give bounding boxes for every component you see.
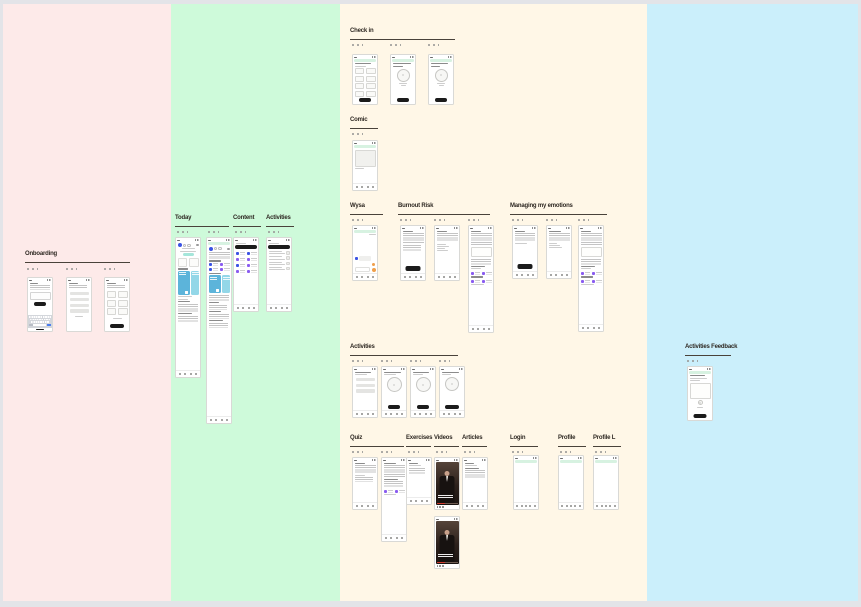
- activity-thumb-icon: [286, 267, 290, 271]
- question-line: [690, 378, 707, 379]
- skip-link[interactable]: [75, 316, 83, 317]
- profile-icon: [459, 413, 461, 415]
- avatar[interactable]: [209, 247, 213, 251]
- text-line: [515, 243, 527, 244]
- exercises-screen-1[interactable]: [406, 457, 432, 505]
- text-lines: [384, 481, 403, 487]
- text-lines: [437, 233, 458, 242]
- shortcut-row: [209, 268, 230, 271]
- app-bar: [595, 460, 617, 463]
- frame-dots: [512, 451, 523, 453]
- resource-item[interactable]: [592, 272, 602, 275]
- resource-row: [384, 490, 405, 493]
- mood-options[interactable]: [355, 68, 376, 74]
- frame-dots: [352, 133, 363, 135]
- quote-box: [581, 247, 602, 257]
- timer-dial[interactable]: [445, 377, 459, 391]
- home-icon: [438, 276, 440, 278]
- keyboard-space-key[interactable]: [33, 324, 46, 326]
- blue-app-icon: [236, 264, 239, 267]
- category-tabs[interactable]: [268, 245, 290, 249]
- bottom-nav[interactable]: [435, 273, 459, 280]
- option-row[interactable]: [70, 304, 89, 307]
- pause-button[interactable]: [417, 405, 429, 409]
- video-player[interactable]: [436, 462, 459, 506]
- content-screen-1[interactable]: [233, 237, 259, 312]
- bottom-nav[interactable]: [353, 273, 377, 280]
- activities-icon: [477, 505, 479, 507]
- activity-row[interactable]: [269, 267, 290, 270]
- timer-dial[interactable]: [387, 377, 402, 392]
- managing-emotions-screen-3[interactable]: [578, 225, 604, 332]
- activities-feedback-screen[interactable]: [687, 366, 713, 421]
- text-lines: [69, 285, 87, 289]
- app-bar: [689, 371, 711, 374]
- option-chips[interactable]: [107, 300, 128, 307]
- activity-row[interactable]: [269, 256, 290, 259]
- start-button[interactable]: [388, 405, 400, 409]
- profile-icon: [532, 274, 534, 276]
- summary-card[interactable]: [189, 258, 199, 267]
- profile-icon: [195, 373, 197, 375]
- home-icon: [237, 307, 239, 309]
- activity-row[interactable]: [269, 262, 290, 265]
- shortcut[interactable]: [220, 263, 230, 266]
- heading-line: [442, 372, 459, 373]
- section-underline: [406, 446, 431, 447]
- heading-line: [471, 276, 483, 277]
- done-button[interactable]: [435, 98, 447, 102]
- bell-icon[interactable]: [196, 244, 198, 246]
- avatar[interactable]: [178, 243, 182, 247]
- text-line: [355, 374, 367, 375]
- status-bar: [354, 368, 376, 371]
- feature-card-cyan[interactable]: [222, 275, 229, 293]
- profile-icon: [566, 274, 568, 276]
- bottom-nav[interactable]: [463, 502, 487, 509]
- purple-app-icon: [247, 264, 250, 267]
- text-lines: [107, 285, 125, 289]
- next-button[interactable]: [359, 98, 371, 102]
- mood-circle-icon[interactable]: [218, 247, 221, 250]
- text-lines: [581, 259, 601, 265]
- status-bar: [412, 368, 434, 371]
- activity-timer-screen-3[interactable]: [439, 366, 465, 418]
- status-bar: [595, 457, 617, 460]
- comic-screen-1[interactable]: [352, 140, 378, 191]
- mood-row: [209, 247, 230, 251]
- bot-message-bubble: [359, 256, 371, 261]
- text-lines: [465, 470, 485, 478]
- text-line: [581, 268, 591, 269]
- frame-dots: [578, 219, 589, 221]
- status-bar: [408, 459, 430, 462]
- blue-app-icon: [247, 252, 250, 255]
- caption-line: [113, 318, 122, 319]
- frame-dots: [408, 451, 419, 453]
- quote-box: [471, 247, 492, 257]
- managing-emotions-screen-2[interactable]: [546, 225, 572, 279]
- resource-item[interactable]: [471, 280, 481, 283]
- shortcut[interactable]: [209, 268, 219, 271]
- option-row[interactable]: [70, 309, 89, 312]
- bottom-nav[interactable]: [407, 497, 431, 504]
- content-item[interactable]: [247, 264, 257, 267]
- column-feedback: [647, 4, 858, 601]
- resource-item[interactable]: [395, 490, 405, 493]
- start-button[interactable]: [518, 264, 533, 269]
- blue-app-icon: [209, 268, 212, 271]
- purple-app-icon: [581, 272, 584, 275]
- section-title-wysa: Wysa: [350, 203, 365, 209]
- bottom-nav[interactable]: [513, 271, 537, 278]
- section-underline: [685, 355, 731, 356]
- app-bar: [354, 230, 376, 233]
- text-lines: [209, 323, 228, 328]
- check-in-button[interactable]: [183, 253, 194, 256]
- home-icon: [410, 500, 412, 502]
- app-bar: [392, 59, 414, 62]
- check-in-screen-1[interactable]: [352, 54, 378, 105]
- status-bar: [208, 239, 230, 242]
- question-line: [355, 66, 366, 67]
- home-icon: [466, 505, 468, 507]
- bottom-nav[interactable]: [514, 502, 538, 509]
- profile-icon: [401, 413, 403, 415]
- section-underline: [462, 446, 487, 447]
- resource-item[interactable]: [482, 272, 492, 275]
- section-underline: [233, 226, 261, 227]
- start-button[interactable]: [406, 266, 421, 271]
- dial-label: [399, 83, 407, 84]
- bottom-nav[interactable]: [401, 273, 425, 280]
- option-row[interactable]: [70, 298, 89, 301]
- volume-icon: [439, 506, 441, 508]
- text-lines: [209, 305, 227, 310]
- video-player[interactable]: [436, 521, 459, 565]
- home-icon: [516, 274, 518, 276]
- managing-emotions-screen-1[interactable]: [512, 225, 538, 279]
- list-line: [437, 250, 448, 251]
- profile-icon: [226, 419, 228, 421]
- text-lines: [409, 468, 425, 474]
- video-progress-bar[interactable]: [437, 562, 458, 563]
- bottom-nav[interactable]: [207, 416, 231, 423]
- onboarding-screen-2[interactable]: [66, 277, 92, 332]
- wysa-chat-screen[interactable]: [352, 225, 378, 281]
- next-button[interactable]: [397, 98, 409, 102]
- frame-dots: [560, 451, 571, 453]
- mood-dial[interactable]: [397, 69, 410, 82]
- text-lines: [209, 252, 230, 259]
- profile-icon: [372, 276, 374, 278]
- content-icon: [471, 505, 473, 507]
- continue-button[interactable]: [34, 302, 46, 306]
- resource-item[interactable]: [581, 280, 591, 283]
- activity-intro-screen[interactable]: [352, 366, 378, 418]
- purple-app-icon: [581, 280, 584, 283]
- status-bar: [689, 368, 711, 371]
- content-item[interactable]: [236, 252, 246, 255]
- burnout-risk-screen-1[interactable]: [400, 225, 426, 281]
- status-bar: [392, 56, 414, 59]
- bottom-nav[interactable]: [234, 304, 258, 311]
- home-icon: [582, 327, 584, 329]
- articles-screen-1[interactable]: [462, 457, 488, 510]
- step-row[interactable]: [356, 389, 375, 392]
- submit-button[interactable]: [694, 414, 707, 418]
- option-chips[interactable]: [107, 308, 128, 315]
- activities-screen-1[interactable]: [266, 237, 292, 312]
- purple-app-icon: [220, 268, 223, 271]
- step-row[interactable]: [356, 384, 375, 387]
- list-line: [549, 245, 560, 246]
- frame-dots: [208, 231, 219, 233]
- section-title-onboarding: Onboarding: [25, 251, 57, 257]
- section-title-profile-l: Profile L: [593, 435, 615, 441]
- frame-dots: [268, 231, 279, 233]
- content-icon: [361, 505, 363, 507]
- home-icon: [210, 419, 212, 421]
- video-controls[interactable]: [435, 564, 459, 568]
- list-line: [437, 244, 446, 245]
- bottom-nav[interactable]: [353, 502, 377, 509]
- activity-timer-screen-2[interactable]: [410, 366, 436, 418]
- time-label: [442, 506, 444, 508]
- today-screen-1[interactable]: [175, 237, 201, 378]
- activities-icon: [367, 186, 369, 188]
- rating-dial[interactable]: [698, 400, 703, 405]
- send-button[interactable]: [372, 268, 376, 272]
- text-line: [384, 494, 396, 495]
- activities-icon: [190, 373, 192, 375]
- activities-icon: [425, 413, 427, 415]
- heading-line: [471, 266, 485, 267]
- bottom-nav[interactable]: [411, 410, 435, 417]
- continue-button[interactable]: [110, 324, 124, 329]
- bell-icon[interactable]: [227, 248, 229, 250]
- step-row[interactable]: [356, 378, 375, 381]
- mood-options[interactable]: [355, 91, 376, 97]
- content-icon: [415, 500, 417, 502]
- burnout-risk-screen-3[interactable]: [468, 225, 494, 333]
- section-underline: [266, 226, 294, 227]
- section-title-activities-green: Activities: [266, 215, 291, 221]
- bottom-nav[interactable]: [440, 410, 464, 417]
- chat-input[interactable]: [355, 267, 371, 272]
- bottom-nav[interactable]: [594, 502, 618, 509]
- option-chips[interactable]: [107, 291, 128, 298]
- text-lines: [403, 233, 424, 243]
- video-caption: [438, 554, 453, 557]
- app-bar: [208, 242, 230, 245]
- profile-icon: [372, 413, 374, 415]
- content-icon: [443, 276, 445, 278]
- greeting-line: [180, 251, 196, 252]
- summary-card[interactable]: [178, 258, 188, 267]
- feature-card-cyan[interactable]: [191, 271, 198, 295]
- home-icon: [385, 537, 387, 539]
- text-line: [409, 465, 421, 466]
- resource-item[interactable]: [471, 272, 481, 275]
- home-icon: [385, 413, 387, 415]
- bottom-nav[interactable]: [176, 370, 200, 377]
- burnout-risk-screen-2[interactable]: [434, 225, 460, 281]
- user-reply-dot[interactable]: [372, 263, 375, 266]
- profile-icon: [482, 505, 484, 507]
- speaker-body: [440, 535, 455, 564]
- page-heading-line: [269, 243, 279, 244]
- feature-card-blue[interactable]: [209, 275, 221, 293]
- resource-item[interactable]: [581, 272, 591, 275]
- home-icon: [404, 276, 406, 278]
- video-progress-bar[interactable]: [437, 503, 458, 504]
- content-item[interactable]: [247, 270, 257, 273]
- text-input[interactable]: [30, 292, 51, 300]
- bottom-nav[interactable]: [267, 304, 291, 311]
- mood-circle-icon[interactable]: [214, 247, 217, 250]
- resource-item[interactable]: [482, 280, 492, 283]
- text-lines: [581, 233, 602, 245]
- status-bar: [580, 227, 602, 230]
- quiz-screen-1[interactable]: [352, 457, 378, 510]
- content-item[interactable]: [236, 264, 246, 267]
- home-icon: [550, 274, 552, 276]
- home-icon: [356, 276, 358, 278]
- heading-line: [355, 463, 365, 464]
- shortcut[interactable]: [220, 268, 230, 271]
- status-bar: [560, 457, 582, 460]
- status-bar: [268, 239, 290, 242]
- keyboard-return-key[interactable]: [47, 324, 51, 326]
- quiz-screen-2[interactable]: [381, 457, 407, 542]
- page-heading-line: [236, 243, 246, 244]
- home-icon: [561, 505, 563, 507]
- text-lines: [209, 295, 229, 301]
- feedback-canvas[interactable]: [690, 383, 711, 399]
- dial-label: [437, 83, 445, 84]
- bottom-nav[interactable]: [559, 502, 583, 509]
- activities-icon: [367, 413, 369, 415]
- today-screen-2[interactable]: [206, 237, 232, 424]
- login-screen[interactable]: [513, 455, 539, 510]
- content-icon: [521, 505, 523, 507]
- frame-dots: [434, 219, 445, 221]
- content-item[interactable]: [247, 252, 257, 255]
- frame-dots: [546, 219, 557, 221]
- status-bar: [436, 227, 458, 230]
- status-bar: [106, 279, 128, 282]
- video-controls[interactable]: [435, 505, 459, 509]
- content-grid-row: [236, 270, 257, 273]
- resource-item[interactable]: [384, 490, 394, 493]
- option-row[interactable]: [70, 292, 89, 295]
- content-item[interactable]: [236, 258, 246, 261]
- text-lines: [30, 285, 50, 290]
- purple-app-icon: [236, 258, 239, 261]
- heading-line: [178, 268, 188, 269]
- onboarding-screen-1[interactable]: [27, 277, 53, 332]
- activities-icon: [396, 413, 398, 415]
- frame-dots: [512, 219, 523, 221]
- text-lines: [178, 304, 198, 312]
- video-screen-2[interactable]: [434, 516, 460, 569]
- category-tabs[interactable]: [235, 245, 257, 249]
- activities-icon: [570, 505, 572, 507]
- profile-icon: [372, 505, 374, 507]
- question-line: [431, 66, 440, 67]
- comic-panel[interactable]: [355, 150, 376, 167]
- mood-circle-icon[interactable]: [187, 244, 190, 247]
- section-title-login: Login: [510, 435, 525, 441]
- home-icon: [472, 328, 474, 330]
- frame-dots: [352, 451, 363, 453]
- feature-card-blue[interactable]: [178, 271, 190, 295]
- heading-line: [384, 463, 396, 464]
- mood-circle-icon[interactable]: [183, 244, 186, 247]
- bottom-nav[interactable]: [353, 410, 377, 417]
- content-grid-row: [236, 252, 257, 255]
- profile-icon: [286, 307, 288, 309]
- list-line: [549, 247, 562, 248]
- check-in-screen-3[interactable]: [428, 54, 454, 105]
- blue-app-icon: [236, 252, 239, 255]
- activities-icon: [525, 505, 527, 507]
- content-icon: [477, 328, 479, 330]
- content-item[interactable]: [247, 258, 257, 261]
- content-icon: [566, 505, 568, 507]
- section-title-comic: Comic: [350, 117, 367, 123]
- profile-icon: [579, 505, 581, 507]
- activity-row[interactable]: [269, 251, 290, 254]
- profile-l-screen[interactable]: [593, 455, 619, 510]
- keyboard-123-key[interactable]: [29, 324, 33, 326]
- video-screen-1[interactable]: [434, 457, 460, 510]
- profile-screen[interactable]: [558, 455, 584, 510]
- bottom-nav[interactable]: [353, 183, 377, 190]
- section-underline: [175, 226, 229, 227]
- text-line: [581, 284, 594, 285]
- timer-dial[interactable]: [416, 377, 431, 392]
- mood-options[interactable]: [355, 76, 376, 82]
- home-icon: [516, 505, 518, 507]
- blue-app-icon: [209, 263, 212, 266]
- bottom-nav[interactable]: [382, 410, 406, 417]
- section-underline: [510, 214, 607, 215]
- bottom-nav[interactable]: [469, 325, 493, 332]
- onboarding-screen-3[interactable]: [104, 277, 130, 332]
- bottom-nav[interactable]: [579, 324, 603, 331]
- shortcut[interactable]: [209, 263, 219, 266]
- journal-icon: [609, 505, 611, 507]
- heading-line: [581, 266, 595, 267]
- check-in-screen-2[interactable]: [390, 54, 416, 105]
- bottom-nav[interactable]: [547, 271, 571, 278]
- content-item[interactable]: [236, 270, 246, 273]
- activity-timer-screen-1[interactable]: [381, 366, 407, 418]
- mood-options[interactable]: [355, 83, 376, 89]
- text-lines: [355, 477, 373, 482]
- keyboard[interactable]: [28, 315, 52, 328]
- finish-button[interactable]: [445, 405, 459, 409]
- purple-app-icon: [247, 258, 250, 261]
- text-line: [384, 374, 396, 375]
- mood-dial[interactable]: [435, 69, 448, 82]
- home-icon: [356, 505, 358, 507]
- resource-item[interactable]: [592, 280, 602, 283]
- text-lines: [471, 233, 492, 245]
- bottom-nav[interactable]: [382, 534, 406, 541]
